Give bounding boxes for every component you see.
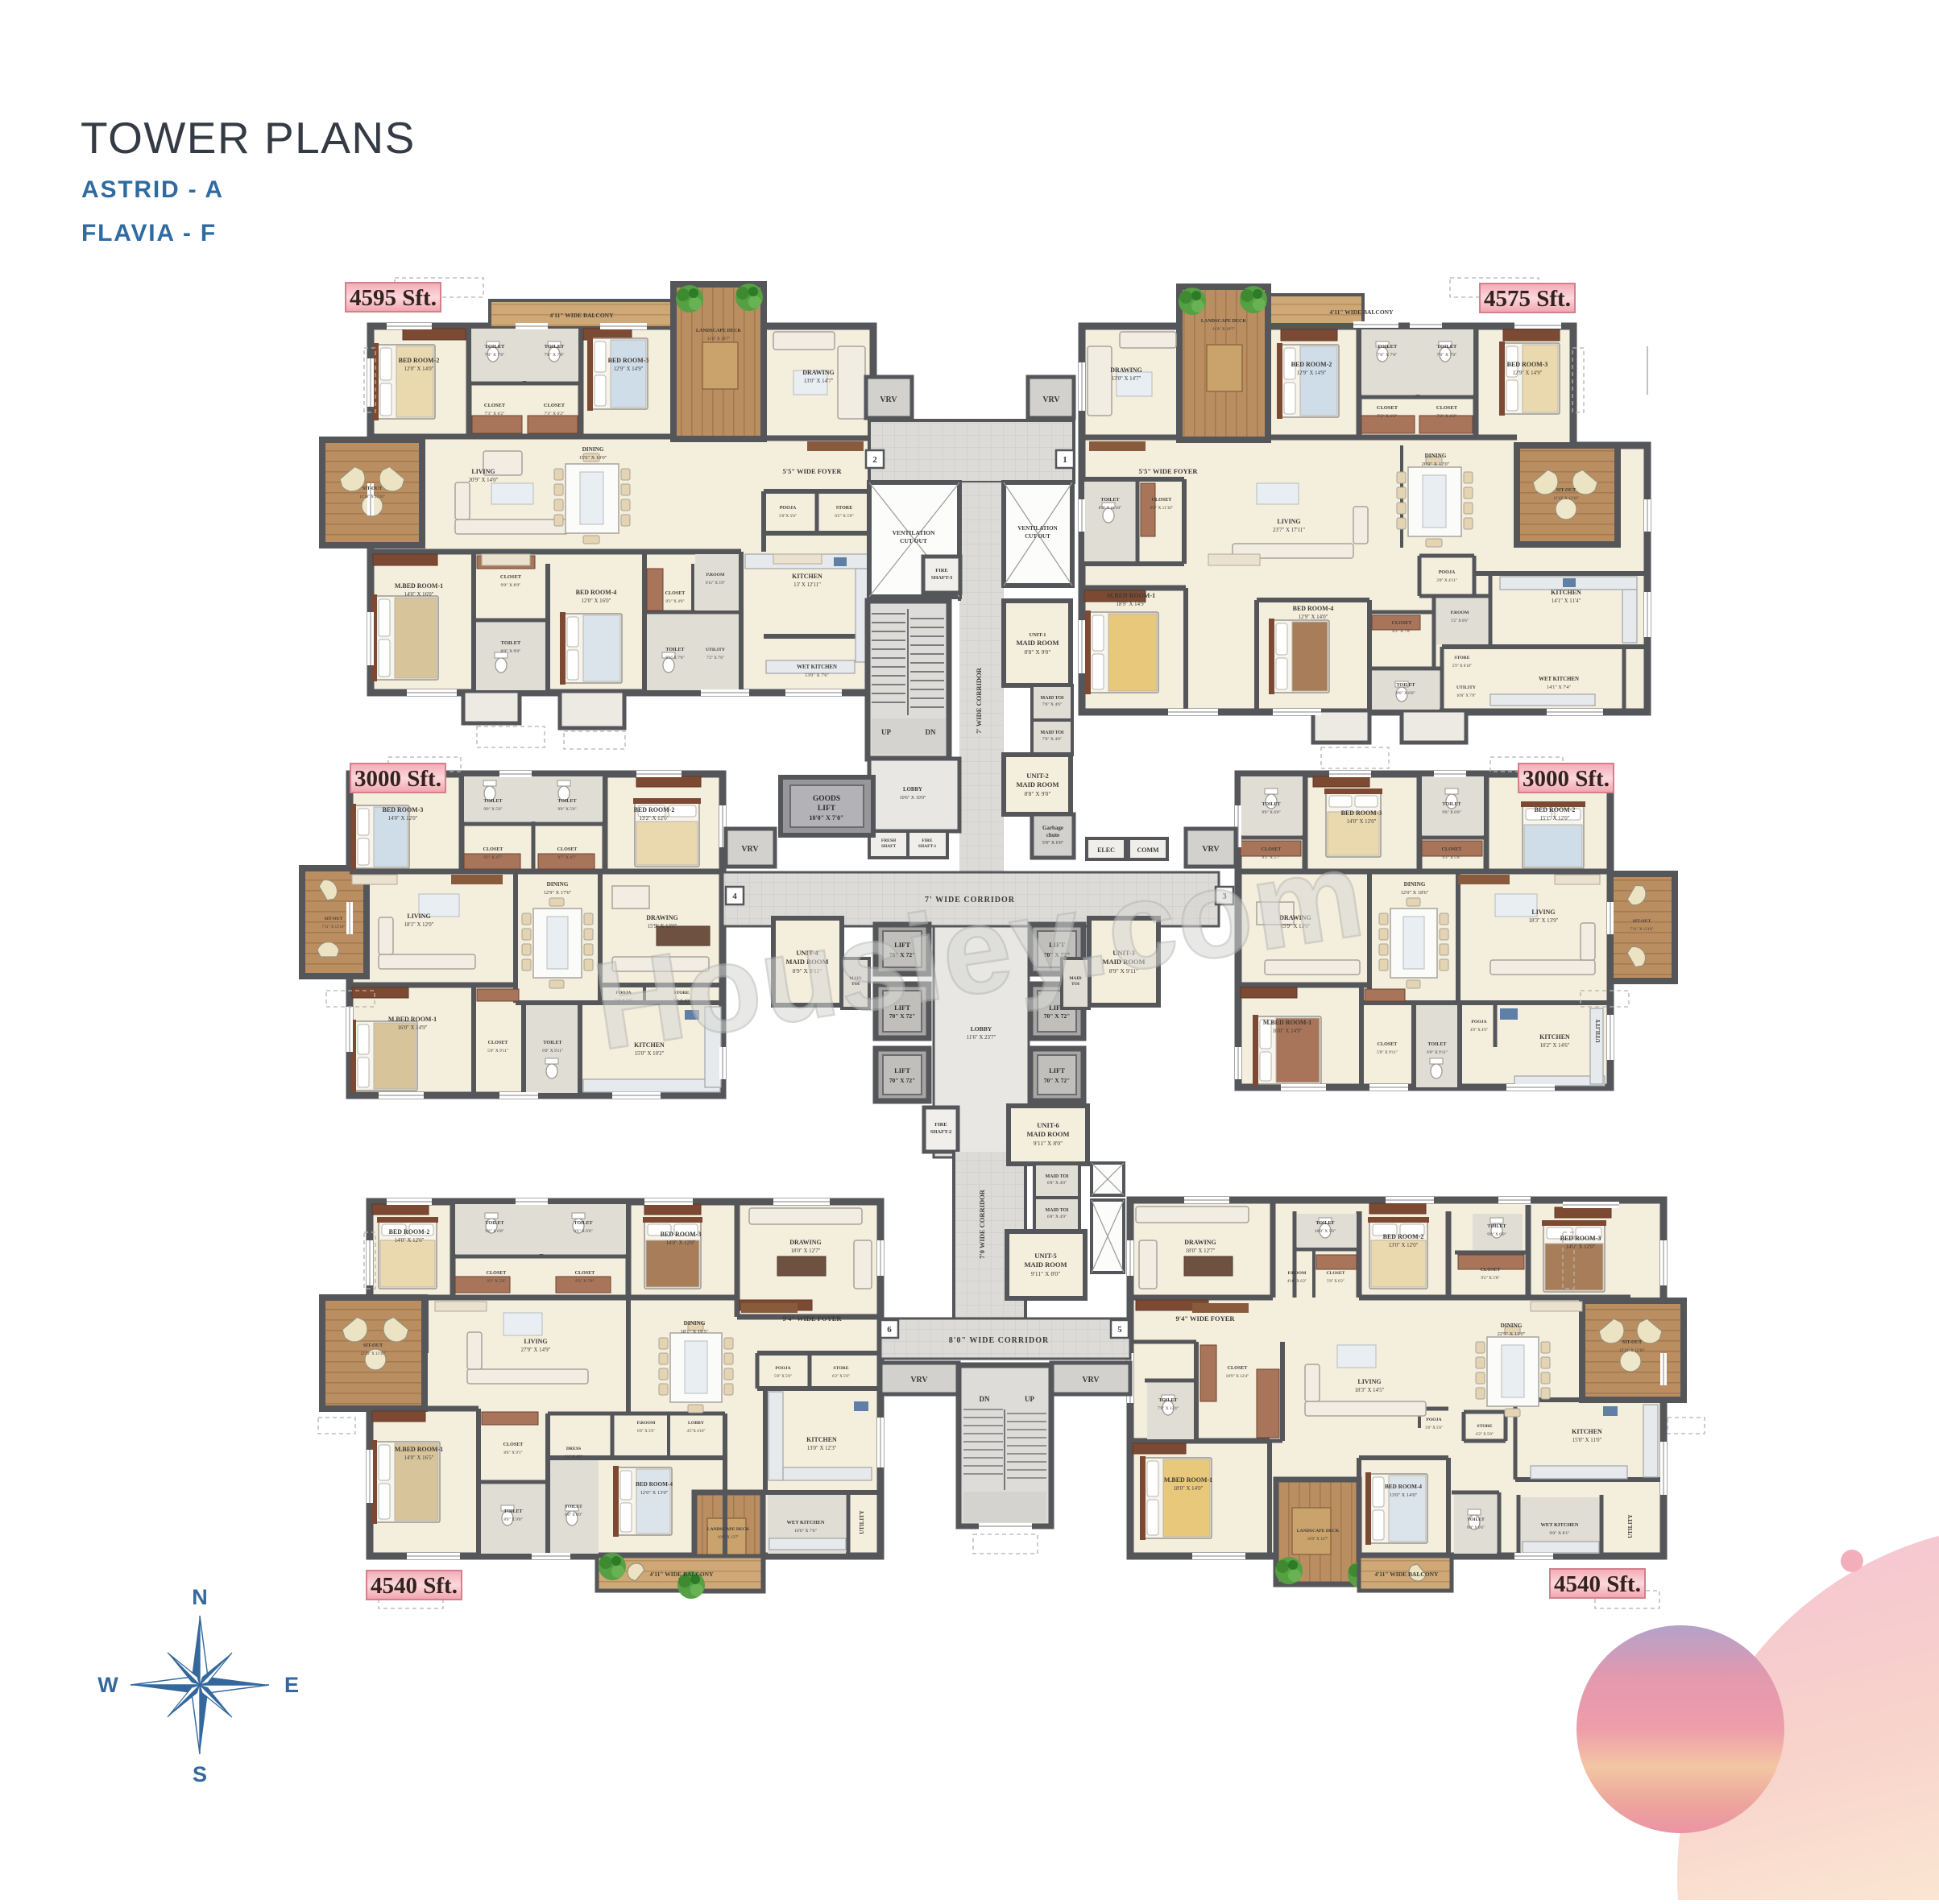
svg-text:VRV: VRV — [880, 395, 897, 404]
svg-text:5'2" X 6'6": 5'2" X 6'6" — [1451, 619, 1469, 623]
svg-text:TOILET: TOILET — [501, 640, 521, 646]
svg-text:4'0" X 4'0": 4'0" X 4'0" — [1470, 1029, 1488, 1033]
svg-text:14'0" X 12'0": 14'0" X 12'0" — [666, 1240, 696, 1246]
svg-text:18'3" X 14'5": 18'3" X 14'5" — [1355, 1388, 1385, 1393]
svg-text:9'4" WIDE FOYER: 9'4" WIDE FOYER — [1175, 1314, 1235, 1322]
svg-text:CLOSET: CLOSET — [487, 1271, 507, 1276]
svg-text:TOILET: TOILET — [1262, 802, 1280, 807]
svg-text:8'0" X 6'0": 8'0" X 6'0" — [1396, 691, 1415, 696]
svg-text:18'9" X 14'9": 18'9" X 14'9" — [1117, 602, 1146, 607]
svg-text:10'2" X 14'6": 10'2" X 14'6" — [1540, 1043, 1570, 1049]
svg-text:TOILET: TOILET — [1396, 683, 1415, 688]
svg-text:TOILET: TOILET — [557, 799, 576, 804]
svg-text:FLAVIA - F: FLAVIA - F — [81, 220, 217, 246]
svg-text:DN: DN — [926, 728, 936, 736]
svg-text:LOBBY: LOBBY — [971, 1025, 992, 1033]
svg-text:TOILET: TOILET — [1315, 1221, 1334, 1226]
svg-text:W: W — [97, 1673, 118, 1697]
svg-text:BED ROOM-3: BED ROOM-3 — [1560, 1235, 1601, 1242]
svg-text:13'0" X 7'6": 13'0" X 7'6" — [805, 673, 829, 678]
svg-text:5'0" X 6'0": 5'0" X 6'0" — [1042, 841, 1064, 846]
svg-text:12'9" X 14'9": 12'9" X 14'9" — [1513, 370, 1543, 376]
svg-text:15'0" X 11'0": 15'0" X 11'0" — [1572, 1438, 1602, 1443]
svg-text:DN: DN — [980, 1395, 990, 1403]
svg-text:LANDSCAPE DECK: LANDSCAPE DECK — [1201, 319, 1247, 324]
svg-text:TOILET: TOILET — [543, 1041, 561, 1045]
svg-text:11'0" X 19'7": 11'0" X 19'7" — [1212, 327, 1235, 332]
svg-text:6'8" X 4'0": 6'8" X 4'0" — [1047, 1215, 1067, 1219]
svg-text:14'0" X 16'5": 14'0" X 16'5" — [404, 1455, 434, 1461]
svg-text:9'0" X 5'6": 9'0" X 5'6" — [483, 807, 502, 812]
svg-text:6'8" X 4'0": 6'8" X 4'0" — [1047, 1181, 1067, 1186]
svg-text:TOILET: TOILET — [1378, 344, 1398, 350]
svg-text:6'4" X 4'8": 6'4" X 4'8" — [565, 1455, 582, 1459]
svg-text:VENTILATION: VENTILATION — [1017, 525, 1057, 532]
svg-text:LIVING: LIVING — [407, 913, 430, 920]
svg-text:LIVING: LIVING — [1277, 518, 1300, 525]
svg-text:14'1" X 7'4": 14'1" X 7'4" — [1547, 685, 1571, 690]
svg-text:15'6" X 10'0": 15'6" X 10'0" — [579, 455, 607, 461]
svg-text:7'0 WIDE CORRIDOR: 7'0 WIDE CORRIDOR — [978, 1189, 986, 1259]
svg-text:M.BED ROOM-1: M.BED ROOM-1 — [1263, 1019, 1311, 1026]
svg-text:LIFT: LIFT — [818, 805, 836, 813]
svg-text:9'4" WIDE FOYER: 9'4" WIDE FOYER — [782, 1314, 842, 1322]
svg-text:14'0" X 12'0": 14'0" X 12'0" — [1566, 1244, 1596, 1250]
svg-text:9'0" X 8'1": 9'0" X 8'1" — [1549, 1531, 1569, 1536]
svg-text:10'0" X 14'7": 10'0" X 14'7" — [1307, 1538, 1329, 1542]
svg-text:9'3" X 4'7": 9'3" X 4'7" — [483, 855, 502, 860]
svg-text:22'9" X 13'0": 22'9" X 13'0" — [1498, 1331, 1526, 1337]
svg-text:4: 4 — [732, 892, 737, 901]
svg-text:5'0"X 5'0": 5'0"X 5'0" — [779, 514, 797, 519]
svg-text:1: 1 — [1063, 455, 1067, 465]
svg-text:10'6" X 10'0": 10'6" X 10'0" — [900, 796, 926, 801]
svg-text:8'3" X 7'8": 8'3" X 7'8" — [1392, 629, 1411, 634]
svg-text:13'0" X 12'3": 13'0" X 12'3" — [807, 1446, 837, 1451]
svg-text:9'3" X 5'8": 9'3" X 5'8" — [487, 1279, 505, 1284]
svg-text:KITCHEN: KITCHEN — [1539, 1033, 1570, 1041]
svg-text:VRV: VRV — [1082, 1376, 1100, 1385]
svg-text:CLOSET: CLOSET — [1152, 498, 1172, 503]
svg-text:4595 Sft.: 4595 Sft. — [350, 285, 437, 311]
svg-text:4575 Sft.: 4575 Sft. — [1484, 286, 1571, 312]
svg-text:12'0" X 18'6": 12'0" X 18'6" — [1401, 890, 1429, 896]
svg-text:CUT OUT: CUT OUT — [900, 537, 927, 544]
svg-text:SIT-OUT: SIT-OUT — [1622, 1340, 1642, 1345]
svg-text:LIVING: LIVING — [524, 1338, 547, 1345]
svg-text:DRAWING: DRAWING — [789, 1239, 821, 1246]
svg-text:STORE: STORE — [836, 506, 853, 511]
svg-text:CLOSET: CLOSET — [503, 1442, 524, 1447]
svg-text:9'0" X 6'0": 9'0" X 6'0" — [1442, 810, 1460, 815]
svg-text:20'9" X 14'0": 20'9" X 14'0" — [469, 478, 499, 483]
svg-text:12'10" X 12'10": 12'10" X 12'10" — [1553, 497, 1579, 501]
svg-text:FRESH: FRESH — [881, 838, 897, 843]
svg-text:DINING: DINING — [684, 1320, 706, 1327]
svg-text:BED ROOM-3: BED ROOM-3 — [383, 806, 424, 813]
svg-text:15'1" X 12'0": 15'1" X 12'0" — [1540, 816, 1570, 822]
svg-text:BED ROOM-2: BED ROOM-2 — [634, 806, 675, 813]
svg-text:WET KITCHEN: WET KITCHEN — [786, 1520, 824, 1525]
svg-text:ASTRID - A: ASTRID - A — [81, 176, 224, 203]
svg-text:BED ROOM-4: BED ROOM-4 — [636, 1481, 673, 1488]
svg-text:6: 6 — [887, 1325, 892, 1335]
svg-text:4'5"X 4'10": 4'5"X 4'10" — [687, 1430, 706, 1434]
svg-text:18'1" X 19'5": 18'1" X 19'5" — [681, 1329, 709, 1335]
svg-text:CLOSET: CLOSET — [1442, 847, 1462, 852]
svg-text:VRV: VRV — [741, 845, 759, 854]
svg-text:SHAFT-2: SHAFT-2 — [930, 1129, 952, 1135]
svg-text:5'5" WIDE FOYER: 5'5" WIDE FOYER — [782, 467, 842, 475]
svg-text:LOBBY: LOBBY — [903, 787, 922, 793]
svg-text:MAID TOI: MAID TOI — [1041, 696, 1065, 701]
svg-text:13'0" X 14'7": 13'0" X 14'7" — [804, 379, 834, 384]
svg-text:7'0" X 7'6": 7'0" X 7'6" — [1436, 353, 1456, 358]
svg-text:TOWER PLANS: TOWER PLANS — [81, 113, 416, 163]
svg-text:11'0" X 19'7": 11'0" X 19'7" — [707, 337, 730, 341]
svg-text:8'0" WIDE CORRIDOR: 8'0" WIDE CORRIDOR — [949, 1336, 1050, 1345]
svg-text:16'0" X 14'9": 16'0" X 14'9" — [1273, 1029, 1303, 1034]
svg-text:BED ROOM-2: BED ROOM-2 — [1291, 361, 1332, 368]
svg-text:10'0" X 5'6": 10'0" X 5'6" — [1315, 1229, 1336, 1234]
svg-text:COMM: COMM — [1137, 846, 1159, 854]
svg-text:9'3" X 5'8": 9'3" X 5'8" — [1442, 855, 1460, 860]
svg-text:DINING: DINING — [547, 881, 569, 888]
svg-text:LIFT: LIFT — [1049, 1066, 1065, 1074]
svg-text:LANDSCAPE DECK: LANDSCAPE DECK — [707, 1527, 750, 1532]
svg-text:VRV: VRV — [910, 1376, 928, 1385]
svg-text:BED ROOM-3: BED ROOM-3 — [1507, 361, 1548, 368]
svg-text:7' WIDE CORRIDOR: 7' WIDE CORRIDOR — [975, 667, 983, 733]
svg-text:14'0" X 12'0": 14'0" X 12'0" — [388, 816, 418, 822]
svg-text:4'11" WIDE BALCONY: 4'11" WIDE BALCONY — [1329, 308, 1394, 316]
svg-text:BED ROOM-4: BED ROOM-4 — [1293, 605, 1334, 612]
svg-text:S: S — [193, 1762, 207, 1786]
svg-text:2: 2 — [872, 455, 877, 465]
svg-text:6'0" X 9'11": 6'0" X 9'11" — [1427, 1050, 1448, 1055]
svg-text:10'9" X 12'4": 10'9" X 12'4" — [1226, 1374, 1249, 1379]
svg-text:P.ROOM: P.ROOM — [637, 1421, 656, 1426]
svg-text:SHAFT-1: SHAFT-1 — [918, 844, 937, 849]
svg-text:MAID ROOM: MAID ROOM — [1016, 639, 1059, 647]
svg-text:CLOSET: CLOSET — [1481, 1268, 1501, 1273]
svg-text:6'6" X 5'0": 6'6" X 5'0" — [637, 1430, 655, 1434]
svg-text:DINING: DINING — [582, 446, 604, 453]
svg-text:DRAWING: DRAWING — [1110, 366, 1141, 374]
svg-text:10'0" X 7'6": 10'0" X 7'6" — [794, 1529, 817, 1534]
svg-text:UTILITY: UTILITY — [706, 648, 725, 652]
svg-text:CLOSET: CLOSET — [1378, 1042, 1398, 1047]
svg-text:9'2" X 5'8": 9'2" X 5'8" — [1481, 1276, 1499, 1281]
svg-text:7'0" X 12'4": 7'0" X 12'4" — [1158, 1406, 1179, 1411]
svg-text:UTILITY: UTILITY — [1595, 1019, 1601, 1043]
svg-text:TOILET: TOILET — [1442, 802, 1460, 807]
svg-text:P.ROOM: P.ROOM — [1288, 1271, 1307, 1276]
svg-text:M.BED ROOM-1: M.BED ROOM-1 — [1107, 592, 1155, 599]
svg-text:SHAFT: SHAFT — [881, 844, 897, 849]
svg-text:9'0" X 6'0": 9'0" X 6'0" — [485, 1229, 503, 1234]
svg-text:LIVING: LIVING — [1531, 909, 1555, 916]
svg-text:TOILET: TOILET — [574, 1221, 592, 1226]
svg-text:TOILET: TOILET — [545, 344, 565, 350]
svg-text:9'11" X 8'0": 9'11" X 8'0" — [1031, 1270, 1060, 1277]
svg-text:7'2" X 7'6": 7'2" X 7'6" — [706, 656, 724, 660]
svg-text:5'0" X 6'2": 5'0" X 6'2" — [1327, 1280, 1344, 1284]
svg-text:M.BED ROOM-1: M.BED ROOM-1 — [395, 1446, 443, 1453]
svg-text:TOILET: TOILET — [565, 1505, 582, 1509]
svg-text:BED ROOM-2: BED ROOM-2 — [1535, 806, 1576, 813]
svg-text:10'0" X 7'0": 10'0" X 7'0" — [809, 814, 843, 822]
svg-text:GOODS: GOODS — [813, 795, 840, 803]
svg-text:4'11" WIDE BALCONY: 4'11" WIDE BALCONY — [549, 312, 614, 319]
svg-text:9'11" X 8'0": 9'11" X 8'0" — [1034, 1140, 1063, 1147]
svg-text:5'9" X 6'10": 5'9" X 6'10" — [1452, 664, 1472, 668]
svg-text:UTILITY: UTILITY — [1456, 685, 1476, 690]
svg-text:DRAWING: DRAWING — [1184, 1239, 1216, 1246]
svg-text:TOILET: TOILET — [665, 648, 684, 652]
svg-text:8'0" X 6'6": 8'0" X 6'6" — [1467, 1526, 1485, 1530]
svg-text:13'0" X 14'7": 13'0" X 14'7" — [1112, 376, 1141, 382]
svg-text:70" X 72": 70" X 72" — [1044, 1012, 1071, 1020]
svg-text:MAID TOI: MAID TOI — [1046, 1174, 1070, 1179]
svg-text:CLOSET: CLOSET — [483, 847, 503, 852]
svg-text:BED ROOM-4: BED ROOM-4 — [1385, 1484, 1422, 1490]
svg-text:TOILET: TOILET — [1158, 1398, 1177, 1403]
svg-text:14'1" X 11'4": 14'1" X 11'4" — [1552, 598, 1581, 604]
svg-text:M.BED ROOM-1: M.BED ROOM-1 — [388, 1016, 437, 1023]
svg-text:POOJA: POOJA — [780, 506, 797, 511]
svg-text:10'0" X 13'7": 10'0" X 13'7" — [718, 1536, 740, 1540]
svg-text:LANDSCAPE DECK: LANDSCAPE DECK — [696, 329, 742, 333]
svg-text:KITCHEN: KITCHEN — [806, 1436, 837, 1443]
svg-text:DINING: DINING — [1404, 881, 1426, 888]
svg-text:TOILET: TOILET — [503, 1509, 522, 1514]
svg-text:20'9" X 12'0": 20'9" X 12'0" — [1422, 462, 1450, 467]
svg-text:7'0" X 7'6": 7'0" X 7'6" — [1377, 353, 1397, 358]
svg-text:KITCHEN: KITCHEN — [792, 573, 822, 580]
svg-text:4'11" WIDE BALCONY: 4'11" WIDE BALCONY — [649, 1571, 714, 1578]
svg-text:9'0" X 5'6": 9'0" X 5'6" — [557, 807, 576, 812]
svg-text:E: E — [284, 1673, 299, 1697]
svg-text:CLOSET: CLOSET — [1377, 405, 1398, 411]
svg-text:9'0" X 6'0": 9'0" X 6'0" — [1262, 810, 1280, 815]
svg-text:BED ROOM-4: BED ROOM-4 — [576, 589, 617, 596]
svg-text:18'0" X 12'7": 18'0" X 12'7" — [791, 1248, 821, 1254]
svg-text:6'2" X 5'0": 6'2" X 5'0" — [835, 514, 853, 519]
svg-text:70" X 72": 70" X 72" — [889, 1077, 916, 1084]
svg-text:4540 Sft.: 4540 Sft. — [1554, 1571, 1641, 1597]
svg-text:VRV: VRV — [1042, 395, 1060, 404]
svg-text:TOILET: TOILET — [1467, 1517, 1485, 1522]
svg-text:LOBBY: LOBBY — [688, 1421, 704, 1426]
svg-text:CLOSET: CLOSET — [1228, 1366, 1248, 1371]
svg-text:DRAWING: DRAWING — [802, 369, 834, 376]
svg-text:9'3" X 7'8": 9'3" X 7'8" — [575, 1279, 594, 1284]
svg-text:4'10" X 6'2": 4'10" X 6'2" — [1287, 1280, 1307, 1284]
svg-text:STORE: STORE — [833, 1366, 848, 1371]
svg-text:12'9" X 17'6": 12'9" X 17'6" — [544, 890, 572, 896]
svg-text:5'0" X 9'11": 5'0" X 9'11" — [1377, 1050, 1398, 1055]
svg-text:4540 Sft.: 4540 Sft. — [371, 1573, 458, 1599]
svg-text:SIT-OUT: SIT-OUT — [1633, 919, 1651, 924]
svg-text:MAID TOI: MAID TOI — [1046, 1208, 1070, 1213]
svg-text:CLOSET: CLOSET — [500, 574, 522, 580]
svg-text:9'0" X 6'0": 9'0" X 6'0" — [1487, 1232, 1506, 1237]
svg-text:5: 5 — [1117, 1325, 1122, 1335]
svg-text:Garbage: Garbage — [1042, 825, 1063, 831]
svg-text:P.ROOM: P.ROOM — [1451, 611, 1469, 615]
svg-text:13' X 12'11": 13' X 12'11" — [793, 582, 821, 588]
svg-text:CLOSET: CLOSET — [1436, 405, 1458, 411]
svg-text:11'6" X 23'7": 11'6" X 23'7" — [967, 1035, 996, 1041]
svg-text:STORE: STORE — [1477, 1424, 1492, 1429]
svg-text:MAID TOI: MAID TOI — [1041, 731, 1065, 735]
svg-text:CUT OUT: CUT OUT — [1025, 533, 1050, 540]
svg-text:6'2" X 5'0": 6'2" X 5'0" — [1476, 1433, 1494, 1437]
svg-text:7'11" X 12'10": 7'11" X 12'10" — [322, 925, 346, 929]
svg-text:POOJA: POOJA — [1471, 1020, 1487, 1024]
svg-text:TOILET: TOILET — [1437, 344, 1457, 350]
svg-text:9'0" X 6'0": 9'0" X 6'0" — [574, 1229, 592, 1234]
svg-text:WET KITCHEN: WET KITCHEN — [1540, 1522, 1578, 1528]
svg-text:TOILET: TOILET — [1100, 498, 1119, 503]
svg-text:8'0" X 7'6": 8'0" X 7'6" — [665, 656, 684, 660]
svg-text:LIVING: LIVING — [471, 468, 495, 475]
svg-text:8'0" X 9'0": 8'0" X 9'0" — [500, 649, 520, 654]
svg-text:8'9" X 11'10": 8'9" X 11'10" — [1099, 506, 1121, 511]
svg-text:12'9" X 14'0": 12'9" X 14'0" — [1299, 615, 1328, 620]
svg-text:MAID ROOM: MAID ROOM — [1026, 1130, 1069, 1138]
svg-text:CLOSET: CLOSET — [575, 1271, 595, 1276]
svg-text:5'5" WIDE FOYER: 5'5" WIDE FOYER — [1138, 467, 1198, 475]
svg-text:CLOSET: CLOSET — [484, 403, 506, 408]
svg-text:WET KITCHEN: WET KITCHEN — [1539, 677, 1579, 682]
svg-text:VENTILATION: VENTILATION — [893, 529, 935, 536]
svg-text:12'9" X 14'9": 12'9" X 14'9" — [1297, 370, 1327, 376]
svg-text:CLOSET: CLOSET — [488, 1041, 508, 1045]
svg-text:12'10" X 13'10": 12'10" X 13'10" — [360, 1352, 386, 1356]
svg-text:BED ROOM-3: BED ROOM-3 — [1341, 809, 1382, 817]
svg-text:5'0" X 5'0": 5'0" X 5'0" — [774, 1375, 792, 1379]
svg-text:FIRE: FIRE — [934, 1122, 947, 1128]
svg-text:3'0" X 4'11": 3'0" X 4'11" — [1436, 578, 1457, 583]
svg-text:18'0" X 14'0": 18'0" X 14'0" — [1174, 1486, 1204, 1492]
svg-text:18'0" X 12'7": 18'0" X 12'7" — [1186, 1248, 1216, 1254]
svg-text:DRESS: DRESS — [566, 1447, 581, 1451]
svg-text:3000 Sft.: 3000 Sft. — [354, 766, 441, 792]
svg-text:7'0" X 7'6": 7'0" X 7'6" — [484, 353, 504, 358]
svg-text:DINING: DINING — [1501, 1322, 1523, 1329]
svg-text:16'0" X 14'9": 16'0" X 14'9" — [398, 1025, 428, 1031]
svg-text:BED ROOM-2: BED ROOM-2 — [389, 1228, 430, 1236]
svg-text:UP: UP — [1025, 1395, 1034, 1403]
svg-text:SHAFT-3: SHAFT-3 — [931, 575, 953, 581]
svg-text:13'0" X 12'0": 13'0" X 12'0" — [1389, 1243, 1419, 1248]
svg-text:12'9" X 14'9": 12'9" X 14'9" — [614, 366, 644, 372]
svg-text:KITCHEN: KITCHEN — [1572, 1428, 1602, 1435]
svg-text:7'6" X 4'6": 7'6" X 4'6" — [1042, 737, 1062, 742]
svg-text:18'1" X 12'0": 18'1" X 12'0" — [404, 922, 434, 928]
svg-text:LIFT: LIFT — [894, 1066, 910, 1074]
svg-text:TOILET: TOILET — [1427, 1042, 1446, 1047]
svg-text:12'0" X 16'0": 12'0" X 16'0" — [582, 598, 611, 604]
svg-text:UTILITY: UTILITY — [1627, 1514, 1634, 1538]
svg-text:UNIT-5: UNIT-5 — [1034, 1252, 1057, 1260]
svg-text:chute: chute — [1046, 832, 1059, 838]
svg-text:UP: UP — [881, 728, 891, 736]
svg-text:70" X 72": 70" X 72" — [1044, 1077, 1071, 1084]
svg-text:SIT-OUT: SIT-OUT — [363, 1343, 383, 1348]
svg-text:10'6" X 7'0": 10'6" X 7'0" — [1456, 694, 1476, 698]
svg-text:8'8" X 9'0": 8'8" X 9'0" — [1025, 648, 1051, 656]
svg-text:4'11" WIDE BALCONY: 4'11" WIDE BALCONY — [1374, 1571, 1439, 1578]
svg-text:P.ROOM: P.ROOM — [706, 573, 725, 577]
svg-text:POOJA: POOJA — [1426, 1418, 1442, 1422]
svg-text:7'3" X 6'2": 7'3" X 6'2" — [544, 412, 564, 416]
svg-text:6'6" X 8'0": 6'6" X 8'0" — [565, 1513, 582, 1517]
svg-text:FIRE: FIRE — [935, 568, 948, 573]
svg-text:7'3" X 6'2": 7'3" X 6'2" — [1436, 414, 1456, 419]
svg-text:MAID ROOM: MAID ROOM — [1024, 1260, 1067, 1269]
svg-text:ELEC: ELEC — [1097, 846, 1115, 854]
svg-text:12'0" X 14'0": 12'0" X 14'0" — [404, 366, 434, 372]
svg-text:KITCHEN: KITCHEN — [1551, 589, 1581, 596]
svg-text:7'3" X 6'2": 7'3" X 6'2" — [484, 412, 504, 416]
svg-text:27'9" X 14'9": 27'9" X 14'9" — [521, 1347, 551, 1353]
svg-text:DINING: DINING — [1425, 453, 1447, 459]
svg-text:M.BED ROOM-1: M.BED ROOM-1 — [395, 582, 443, 590]
svg-text:12'10" X 12'10": 12'10" X 12'10" — [1619, 1349, 1645, 1353]
svg-text:8'0" X 9'1": 8'0" X 9'1" — [503, 1451, 522, 1455]
svg-text:UTILITY: UTILITY — [859, 1510, 865, 1534]
svg-text:6'11" X 5'9": 6'11" X 5'9" — [706, 582, 725, 586]
svg-text:UNIT-2: UNIT-2 — [1026, 772, 1049, 780]
svg-text:14'0" X 12'0": 14'0" X 12'0" — [395, 1238, 425, 1244]
svg-text:6'0" X 9'11": 6'0" X 9'11" — [542, 1049, 563, 1053]
svg-text:POOJA: POOJA — [775, 1366, 791, 1371]
svg-text:TOILET: TOILET — [483, 799, 502, 804]
svg-text:TOILET: TOILET — [1487, 1224, 1506, 1229]
svg-text:7'11" X 12'10": 7'11" X 12'10" — [1630, 928, 1654, 932]
svg-text:LANDSCAPE DECK: LANDSCAPE DECK — [1297, 1529, 1340, 1534]
svg-text:7'0" X 7'6": 7'0" X 7'6" — [544, 353, 564, 358]
svg-text:FIRE: FIRE — [922, 838, 932, 843]
svg-text:23'7" X 17'11": 23'7" X 17'11" — [1273, 528, 1305, 533]
svg-text:N: N — [192, 1585, 208, 1609]
svg-text:8'8" X 9'0": 8'8" X 9'0" — [1025, 790, 1051, 797]
svg-text:UNIT-6: UNIT-6 — [1037, 1121, 1059, 1129]
svg-text:12'10" X 12'10": 12'10" X 12'10" — [359, 495, 385, 499]
svg-text:13'0" X 14'0": 13'0" X 14'0" — [1390, 1492, 1418, 1498]
svg-text:8'3" X 4'6": 8'3" X 4'6" — [665, 599, 684, 604]
svg-text:SIT-OUT: SIT-OUT — [325, 917, 343, 921]
svg-text:CLOSET: CLOSET — [665, 591, 686, 596]
svg-text:BED ROOM-3: BED ROOM-3 — [608, 357, 649, 364]
svg-text:BED ROOM-2: BED ROOM-2 — [1383, 1233, 1424, 1240]
svg-text:UNIT-1: UNIT-1 — [1030, 632, 1046, 638]
svg-text:BED ROOM-2: BED ROOM-2 — [399, 357, 440, 364]
svg-text:7'3" X 6'2": 7'3" X 6'2" — [1377, 414, 1397, 419]
svg-text:WET KITCHEN: WET KITCHEN — [797, 664, 837, 670]
svg-text:9'7" X 4'7": 9'7" X 4'7" — [557, 855, 576, 860]
svg-text:STORE: STORE — [1454, 656, 1469, 660]
svg-text:3'0" X 5'0": 3'0" X 5'0" — [1425, 1426, 1443, 1430]
svg-text:13'2" X 12'0": 13'2" X 12'0" — [640, 816, 669, 822]
svg-text:7'6" X 4'6": 7'6" X 4'6" — [1042, 702, 1062, 707]
svg-text:5'0" X 9'11": 5'0" X 9'11" — [487, 1049, 508, 1053]
svg-text:12'0" X 13'0": 12'0" X 13'0" — [640, 1490, 669, 1496]
svg-text:6'2" X 5'0": 6'2" X 5'0" — [832, 1375, 850, 1379]
